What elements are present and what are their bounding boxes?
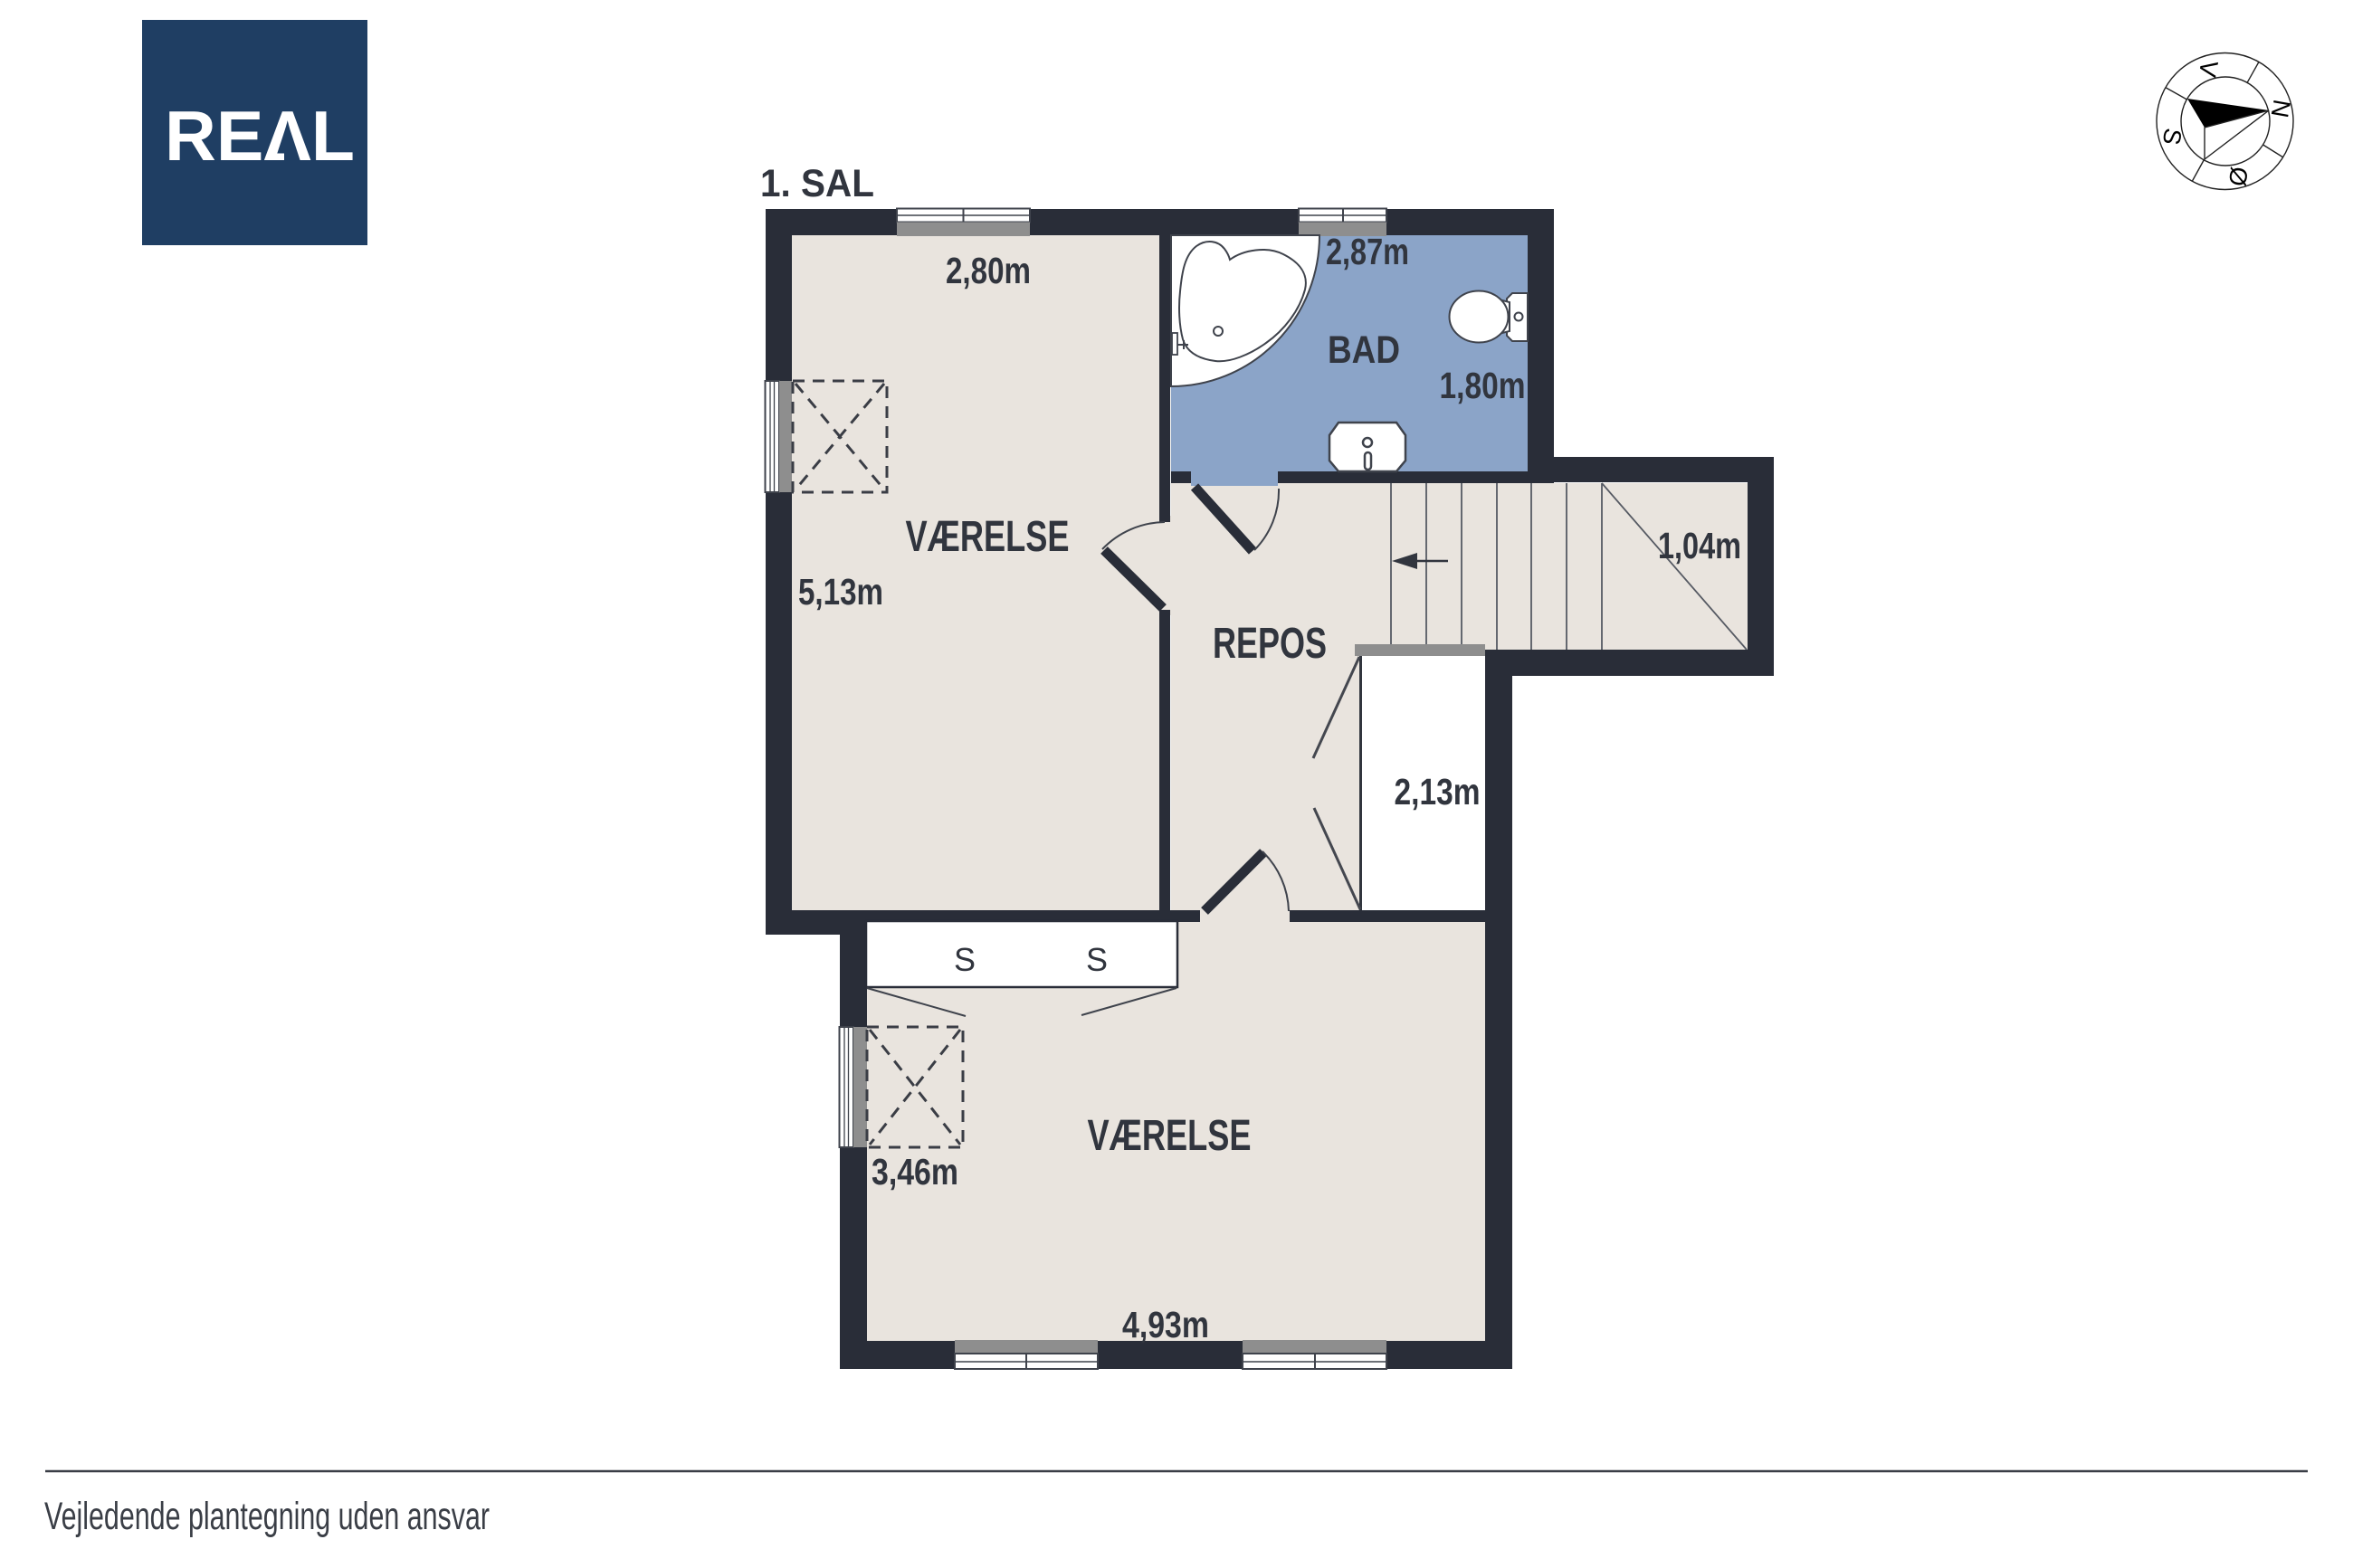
- svg-text:BAD: BAD: [1328, 328, 1400, 372]
- svg-text:2,80m: 2,80m: [946, 250, 1031, 291]
- svg-text:3,46m: 3,46m: [872, 1151, 958, 1193]
- svg-text:1,04m: 1,04m: [1658, 525, 1741, 566]
- svg-text:S: S: [954, 941, 976, 978]
- svg-text:2,87m: 2,87m: [1326, 231, 1409, 272]
- svg-text:2,13m: 2,13m: [1395, 771, 1481, 813]
- svg-text:VÆRELSE: VÆRELSE: [906, 513, 1070, 561]
- svg-text:Vejledende plantegning uden an: Vejledende plantegning uden ansvar: [44, 1495, 490, 1538]
- svg-text:S: S: [1086, 941, 1108, 978]
- svg-text:VÆRELSE: VÆRELSE: [1088, 1112, 1252, 1160]
- svg-text:REΛL: REΛL: [165, 96, 355, 176]
- svg-text:REPOS: REPOS: [1213, 620, 1327, 668]
- svg-text:1,80m: 1,80m: [1440, 365, 1526, 406]
- svg-text:5,13m: 5,13m: [798, 571, 883, 613]
- svg-text:1. SAL: 1. SAL: [760, 162, 874, 205]
- svg-text:4,93m: 4,93m: [1122, 1304, 1209, 1345]
